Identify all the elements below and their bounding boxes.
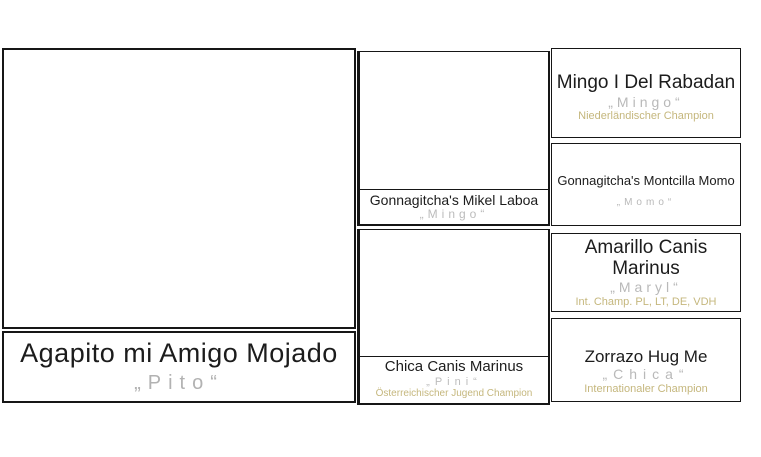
sire-photo-area — [360, 52, 548, 189]
grandparent-4-champion-title: Internationaler Champion — [584, 383, 708, 397]
grandparent-box-2: Gonnagitcha's Montcilla Momo „Momo“ — [551, 143, 741, 226]
pedigree-chart: Agapito mi Amigo Mojado „Pito“ Gonnagitc… — [0, 0, 761, 457]
dam-box: Chica Canis Marinus „Pini“ Österreichisc… — [357, 229, 550, 405]
dam-name-area: Chica Canis Marinus „Pini“ Österreichisc… — [360, 356, 548, 403]
subject-photo-box — [2, 48, 356, 329]
dam-photo-area — [360, 230, 548, 356]
grandparent-box-3: Amarillo Canis Marinus „Maryl“ Int. Cham… — [551, 233, 741, 312]
sire-name-area: Gonnagitcha's Mikel Laboa „Mingo“ — [360, 189, 548, 224]
sire-name: Gonnagitcha's Mikel Laboa — [362, 192, 546, 208]
grandparent-3-champion-title: Int. Champ. PL, LT, DE, VDH — [575, 296, 716, 310]
dam-champion-title: Österreichischer Jugend Champion — [362, 388, 546, 400]
grandparent-4-call-name: „Chica“ — [602, 366, 689, 382]
grandparent-1-call-name: „Mingo“ — [608, 94, 683, 110]
grandparent-3-name: Amarillo Canis Marinus — [552, 238, 740, 280]
grandparent-box-4: Zorrazo Hug Me „Chica“ Internationaler C… — [551, 318, 741, 402]
subject-name-box: Agapito mi Amigo Mojado „Pito“ — [2, 331, 356, 403]
grandparent-2-call-name: „Momo“ — [617, 197, 675, 209]
subject-call-name: „Pito“ — [134, 371, 224, 395]
grandparent-2-name: Gonnagitcha's Montcilla Momo — [557, 174, 734, 188]
grandparent-1-champion-title: Niederländischer Champion — [578, 110, 714, 124]
grandparent-3-call-name: „Maryl“ — [610, 279, 682, 295]
sire-call-name: „Mingo“ — [362, 208, 546, 221]
sire-box: Gonnagitcha's Mikel Laboa „Mingo“ — [357, 51, 550, 226]
dam-name: Chica Canis Marinus — [362, 359, 546, 376]
grandparent-box-1: Mingo I Del Rabadan „Mingo“ Niederländis… — [551, 48, 741, 138]
grandparent-4-name: Zorrazo Hug Me — [585, 348, 708, 367]
dam-call-name: „Pini“ — [362, 376, 546, 388]
grandparent-1-name: Mingo I Del Rabadan — [557, 73, 736, 94]
subject-name: Agapito mi Amigo Mojado — [20, 339, 338, 369]
